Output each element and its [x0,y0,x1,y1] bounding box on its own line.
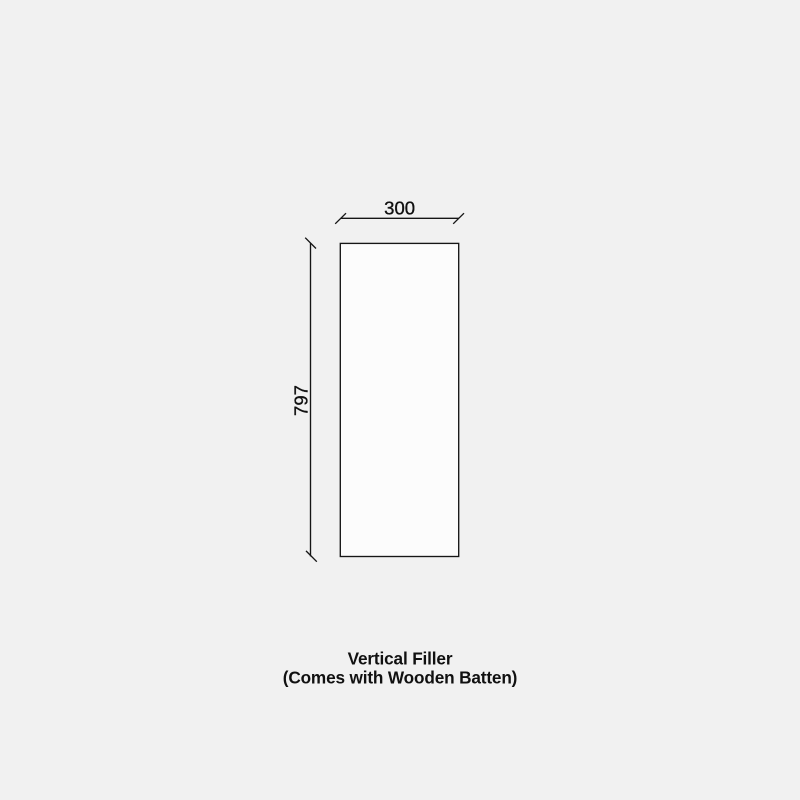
svg-text:(Comes with Wooden Batten): (Comes with Wooden Batten) [283,668,518,688]
svg-text:300: 300 [384,198,415,219]
svg-text:Vertical Filler: Vertical Filler [348,649,453,669]
svg-text:797: 797 [291,385,312,416]
